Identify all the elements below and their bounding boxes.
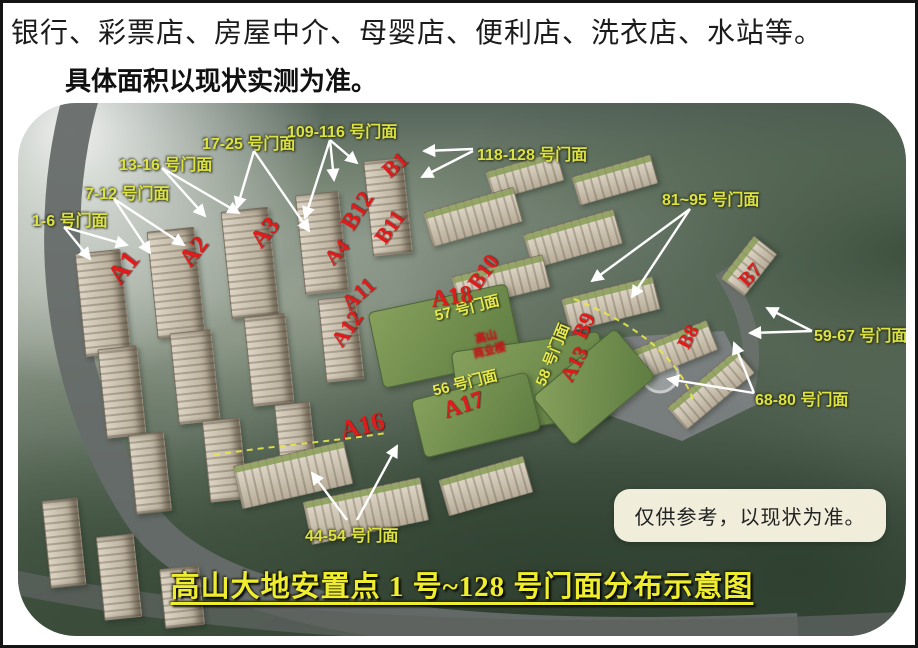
shopfront-callout-label: 109-116 号门面 [287,118,397,142]
shopfront-callout-label: 7-12 号门面 [85,180,169,204]
disclaimer-note: 仅供参考，以现状为准。 [614,489,886,542]
building-label-A2: A2 [174,231,215,272]
building-label-A12: A12 [325,306,368,352]
building-label-A1: A1 [101,244,146,289]
body-text-line2: 具体面积以现状实测为准。 [65,61,377,98]
shopfront-callout-label: 81~95 号门面 [662,186,759,210]
building-label-A11: A11 [336,272,381,316]
site-plan-image: 1-6 号门面7-12 号门面13-16 号门面17-25 号门面109-116… [18,103,906,636]
building-label-B9: B9 [567,309,601,343]
labels-layer: 1-6 号门面7-12 号门面13-16 号门面17-25 号门面109-116… [18,103,906,636]
shopfront-callout-label: 17-25 号门面 [202,130,295,154]
shopfront-callout-label: 13-16 号门面 [119,151,212,175]
shopfront-callout-label: 68-80 号门面 [755,386,848,410]
building-label-A3: A3 [245,212,286,253]
building-label-B7: B7 [734,259,767,292]
building-label-A18: A18 [429,281,474,313]
building-label-B8: B8 [673,322,704,353]
building-label-A4: A4 [319,234,355,270]
shopfront-callout-label: 118-128 号门面 [477,141,587,165]
building-label-A16: A16 [337,406,388,446]
shopfront-callout-label: 59-67 号门面 [814,322,906,346]
map-title: 高山大地安置点 1 号~128 号门面分布示意图 [171,563,754,605]
building-label-B1: B1 [377,147,413,184]
shopfront-callout-label: 1-6 号门面 [32,207,108,231]
document-page: 银行、彩票店、房屋中介、母婴店、便利店、洗衣店、水站等。 具体面积以现状实测为准… [0,0,918,648]
building-label-B11: B11 [369,205,411,249]
body-text-line1: 银行、彩票店、房屋中介、母婴店、便利店、洗衣店、水站等。 [11,11,909,51]
shopfront-callout-label: 44-54 号门面 [305,522,398,546]
